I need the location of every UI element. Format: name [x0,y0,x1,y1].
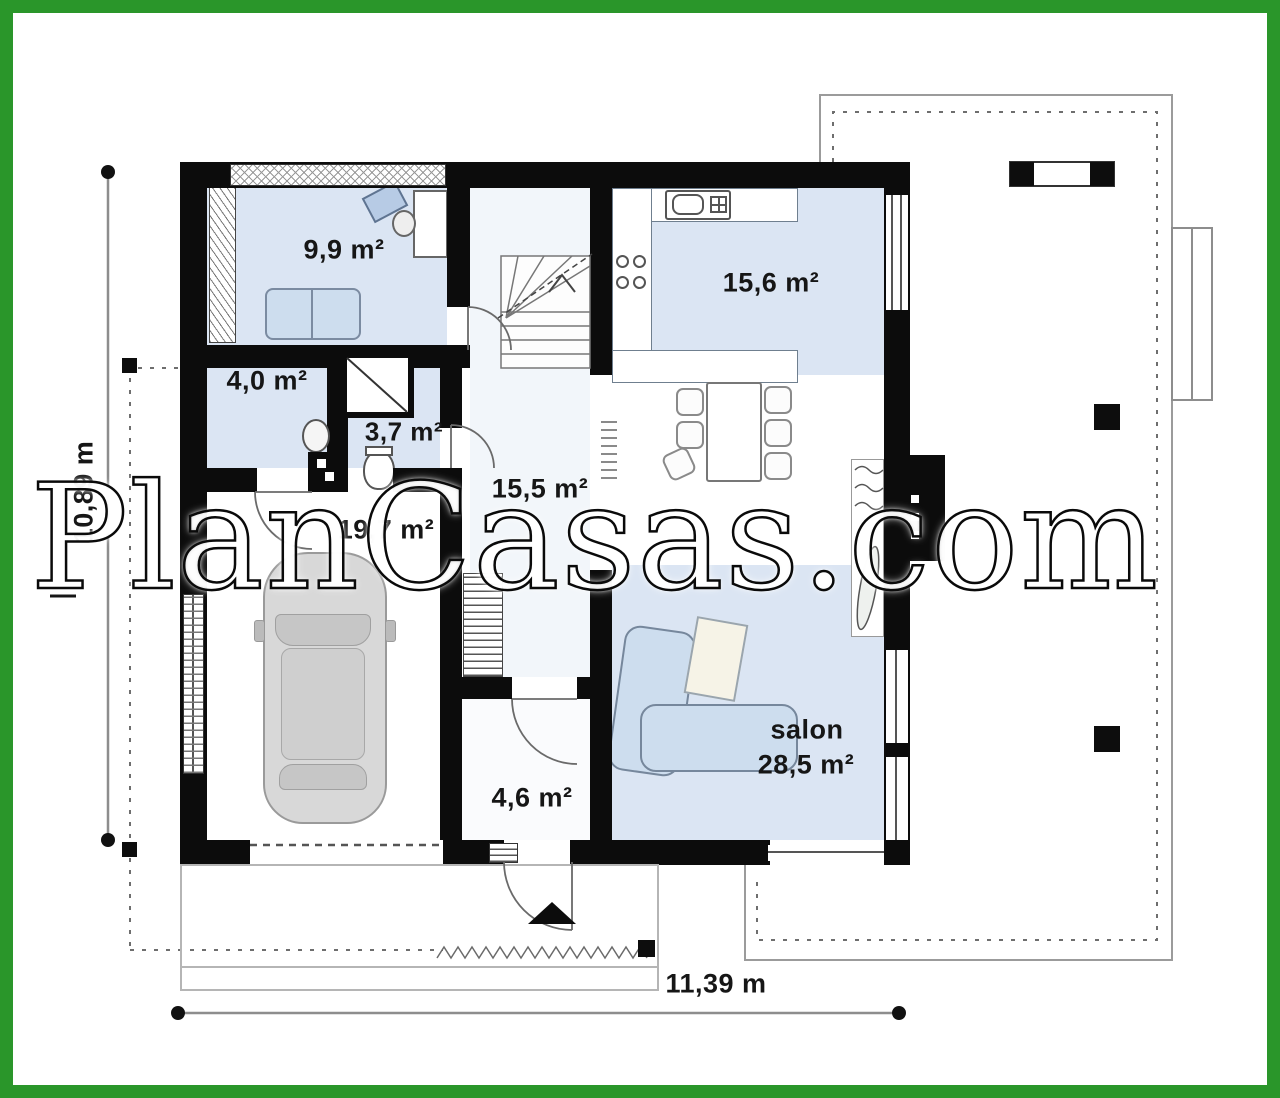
roof-overhang-dashed [130,366,443,950]
porch-slab [181,865,658,990]
porch-lines [181,865,658,990]
room-label-hall: 15,5 m² [492,474,589,505]
plant-leaf [853,545,883,631]
roof-corner-marker [122,842,137,857]
bathroom-door-arc [451,425,494,468]
terrace-post [1094,404,1120,430]
room-label-garage: 19,7 m² [338,515,435,546]
shower-diagonal [347,358,407,412]
terrace-post [1094,726,1120,752]
terrace-solid-boundary [745,95,1172,960]
dimension-endpoint [171,1006,185,1020]
linework-overlay [0,0,1280,1098]
terrace-bench-end [1090,162,1114,186]
room-label-bathroom: 3,7 m² [365,417,443,448]
shower-detail [347,358,407,412]
hearth-decor [853,467,883,631]
room-label-salon-area: 28,5 m² [758,750,855,781]
room-label-salon-name: salon [770,715,843,746]
roof-corner-marker [122,358,137,373]
room-label-kitchen: 15,6 m² [723,268,820,299]
dimension-endpoint [101,165,115,179]
storage-garage-door-arc [255,492,312,549]
terrace-outline [745,95,1212,960]
entrance-arrow [528,902,576,924]
dimension-endpoint [101,833,115,847]
room-label-office: 9,9 m² [303,235,384,266]
dimension-label-height: 10,89 m [69,441,100,544]
dimension-bottom [171,1006,906,1020]
hall-vestibule-door-arc [512,699,577,764]
terrace-dashed-boundary [757,112,1157,940]
terrace-bench-end [1010,162,1034,186]
dimension-label-width: 11,39 m [665,969,766,1000]
door-swings [255,307,577,930]
stairs [498,254,592,368]
room-label-storage: 4,0 m² [226,366,307,397]
porch-steps-sawtooth [437,947,647,958]
porch-post [638,940,655,957]
dimension-endpoint [892,1006,906,1020]
room-label-vestibule: 4,6 m² [491,783,572,814]
firewood-waves [855,467,883,510]
